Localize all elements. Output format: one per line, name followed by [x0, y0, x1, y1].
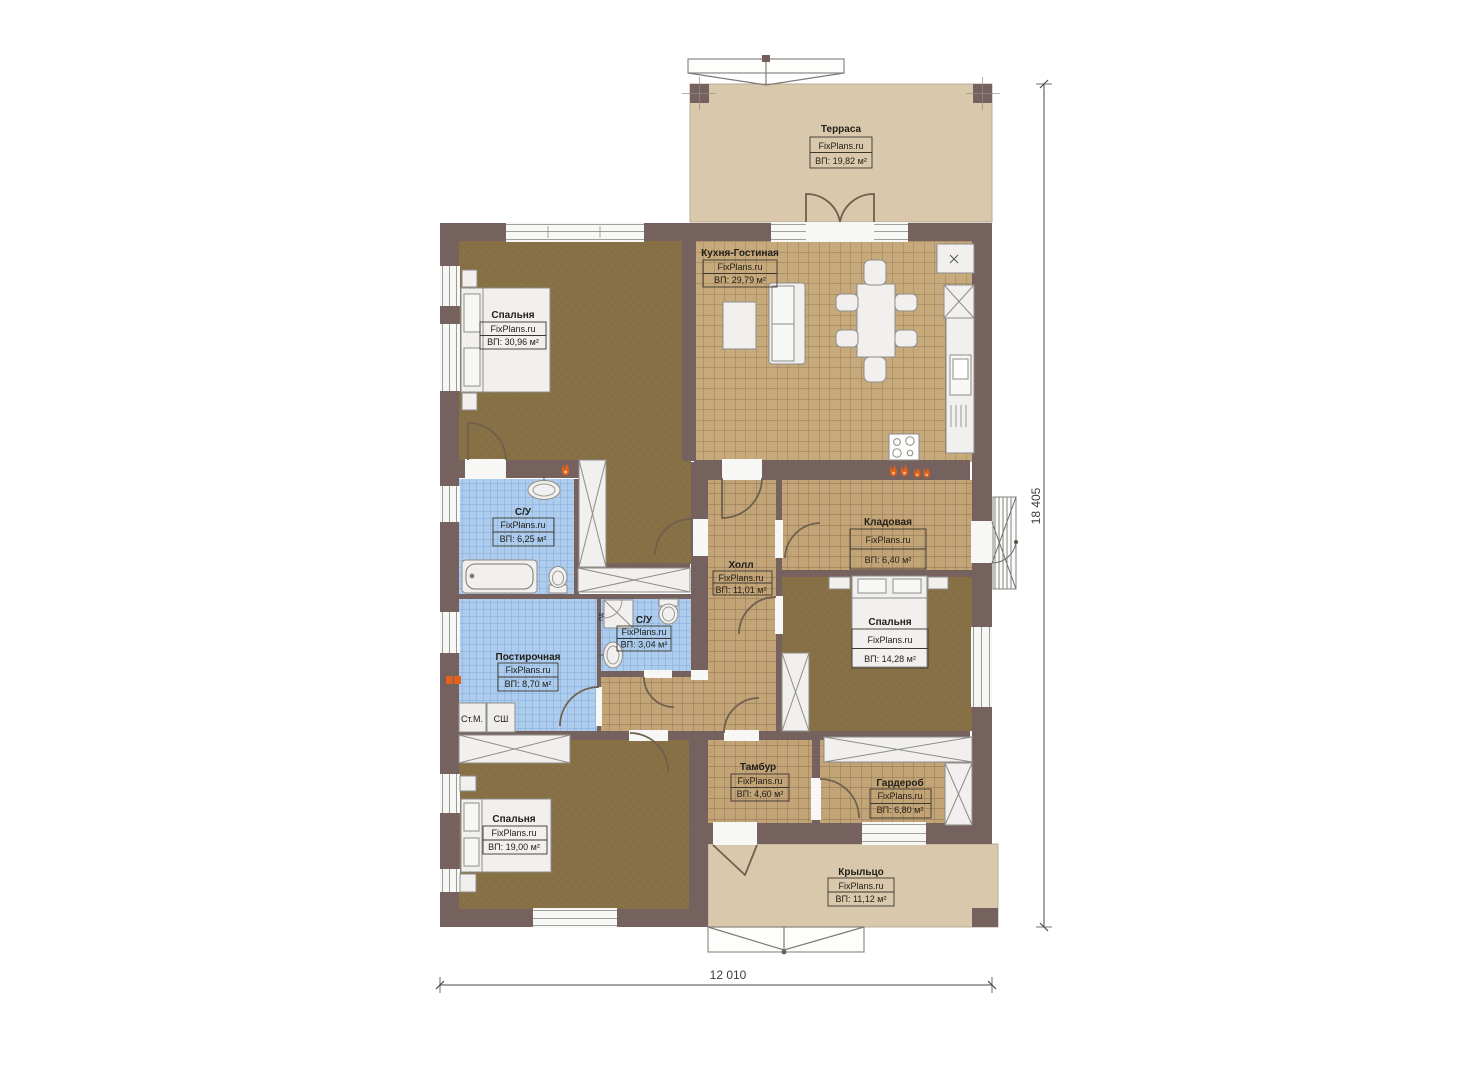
svg-text:С/У: С/У — [636, 615, 653, 626]
svg-text:С/У: С/У — [515, 507, 532, 518]
svg-text:Спальня: Спальня — [868, 617, 911, 628]
svg-text:Кладовая: Кладовая — [864, 517, 912, 528]
svg-text:FixPlans.ru: FixPlans.ru — [818, 141, 863, 151]
svg-text:FixPlans.ru: FixPlans.ru — [877, 791, 922, 801]
svg-text:Спальня: Спальня — [492, 814, 535, 825]
svg-text:FixPlans.ru: FixPlans.ru — [491, 828, 536, 838]
svg-text:ВП: 19,00 м²: ВП: 19,00 м² — [488, 842, 540, 852]
svg-text:FixPlans.ru: FixPlans.ru — [490, 324, 535, 334]
svg-text:ВП: 6,40 м²: ВП: 6,40 м² — [865, 555, 912, 565]
svg-text:ВП: 14,28 м²: ВП: 14,28 м² — [864, 654, 916, 664]
svg-text:Спальня: Спальня — [491, 310, 534, 321]
svg-text:Кухня-Гостиная: Кухня-Гостиная — [701, 248, 779, 259]
svg-text:Крыльцо: Крыльцо — [838, 867, 884, 878]
svg-text:18 405: 18 405 — [1029, 487, 1043, 524]
svg-text:ПД: ПД — [599, 613, 605, 621]
svg-text:FixPlans.ru: FixPlans.ru — [737, 776, 782, 786]
svg-text:FixPlans.ru: FixPlans.ru — [500, 520, 545, 530]
svg-text:ВП: 6,80 м²: ВП: 6,80 м² — [877, 805, 924, 815]
svg-text:FixPlans.ru: FixPlans.ru — [621, 627, 666, 637]
svg-text:FixPlans.ru: FixPlans.ru — [717, 262, 762, 272]
svg-text:Терраса: Терраса — [821, 124, 862, 135]
svg-text:ВП: 6,25 м²: ВП: 6,25 м² — [500, 534, 547, 544]
svg-text:Тамбур: Тамбур — [740, 761, 776, 773]
svg-text:СШ: СШ — [494, 714, 509, 724]
svg-text:ВП: 30,96 м²: ВП: 30,96 м² — [487, 337, 539, 347]
svg-text:ВП: 3,04 м²: ВП: 3,04 м² — [621, 640, 668, 650]
svg-text:Постирочная: Постирочная — [496, 652, 561, 663]
svg-text:ВП: 11,01 м²: ВП: 11,01 м² — [715, 585, 766, 595]
svg-text:FixPlans.ru: FixPlans.ru — [838, 881, 883, 891]
svg-text:ВП: 29,79 м²: ВП: 29,79 м² — [714, 275, 766, 285]
svg-text:FixPlans.ru: FixPlans.ru — [718, 573, 763, 583]
svg-text:Гардероб: Гардероб — [876, 777, 923, 789]
svg-text:ВП: 19,82 м²: ВП: 19,82 м² — [815, 156, 867, 166]
svg-text:Холл: Холл — [728, 560, 753, 571]
svg-text:FixPlans.ru: FixPlans.ru — [505, 665, 550, 675]
svg-text:Ст.М.: Ст.М. — [461, 714, 483, 724]
svg-text:FixPlans.ru: FixPlans.ru — [865, 535, 910, 545]
svg-text:12 010: 12 010 — [710, 968, 747, 982]
svg-text:ВП: 11,12 м²: ВП: 11,12 м² — [835, 894, 886, 904]
svg-text:FixPlans.ru: FixPlans.ru — [867, 635, 912, 645]
svg-text:ВП: 8,70 м²: ВП: 8,70 м² — [505, 679, 552, 689]
svg-text:ВП: 4,60 м²: ВП: 4,60 м² — [737, 789, 784, 799]
